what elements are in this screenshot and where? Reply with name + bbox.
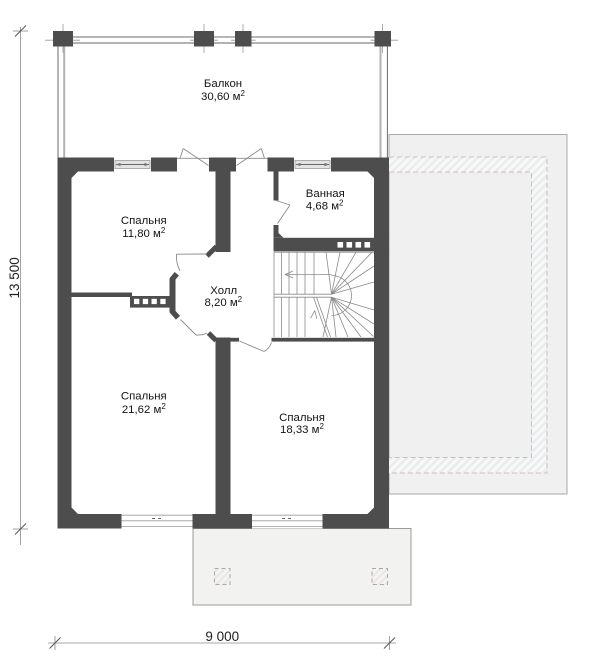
svg-text:Спальня: Спальня (279, 412, 325, 424)
svg-text:Спальня: Спальня (121, 215, 167, 227)
svg-text:13 500: 13 500 (7, 257, 22, 298)
svg-text:18,33 м2: 18,33 м2 (280, 422, 325, 436)
svg-text:4,68 м2: 4,68 м2 (306, 199, 344, 213)
svg-text:Холл: Холл (210, 285, 237, 297)
svg-text:Балкон: Балкон (204, 78, 242, 90)
svg-text:Спальня: Спальня (121, 391, 167, 403)
svg-text:11,80 м2: 11,80 м2 (122, 226, 166, 240)
svg-text:21,62 м2: 21,62 м2 (122, 402, 167, 416)
svg-text:9 000: 9 000 (205, 629, 239, 644)
svg-text:8,20 м2: 8,20 м2 (204, 295, 242, 309)
svg-text:30,60 м2: 30,60 м2 (201, 89, 246, 103)
